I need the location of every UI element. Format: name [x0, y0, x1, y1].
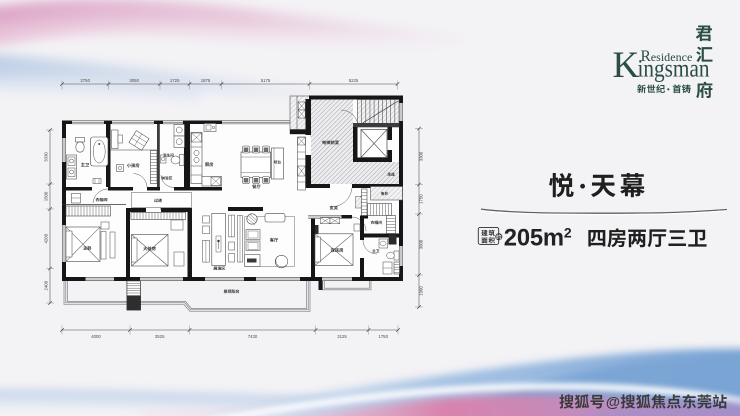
svg-text:4200: 4200: [44, 233, 49, 243]
svg-text:5175: 5175: [261, 78, 271, 83]
svg-text:5225: 5225: [349, 78, 359, 83]
svg-text:3330: 3330: [44, 152, 49, 162]
svg-text:1500: 1500: [44, 191, 49, 201]
svg-text:1725: 1725: [170, 78, 180, 83]
svg-text:3050: 3050: [129, 78, 139, 83]
svg-text:1900: 1900: [419, 286, 424, 296]
svg-text:esidence: esidence: [651, 50, 693, 64]
svg-text:1750: 1750: [378, 334, 388, 339]
svg-text:2400: 2400: [44, 280, 49, 290]
svg-text:205m2: 205m2: [504, 224, 572, 251]
svg-text:3300: 3300: [419, 151, 424, 161]
svg-text:3525: 3525: [155, 334, 165, 339]
svg-text:1875: 1875: [201, 78, 211, 83]
svg-text:2750: 2750: [80, 78, 90, 83]
svg-text:1750: 1750: [419, 194, 424, 204]
svg-text:3600: 3600: [419, 239, 424, 249]
svg-text:@: @: [606, 395, 620, 411]
svg-text:7430: 7430: [248, 334, 258, 339]
svg-text:3125: 3125: [337, 334, 347, 339]
svg-text:4000: 4000: [91, 334, 101, 339]
svg-text:K: K: [613, 45, 640, 86]
